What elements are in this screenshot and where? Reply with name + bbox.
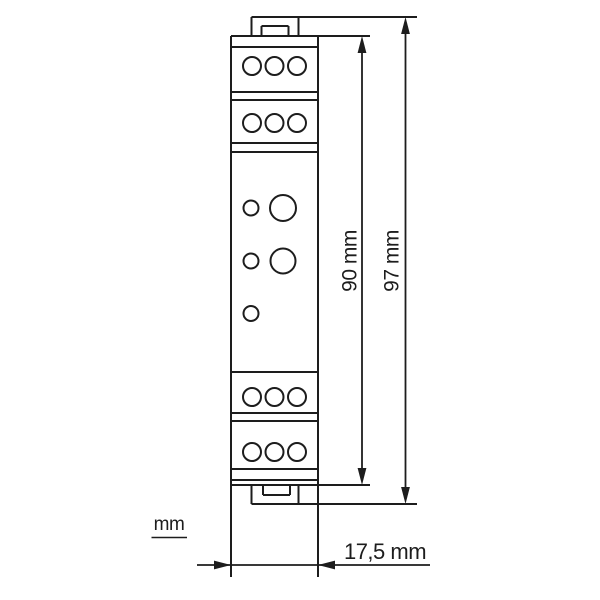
- arrowhead-up-icon: [401, 17, 410, 34]
- small-indicator-hole: [244, 254, 259, 269]
- screw-terminal-circle: [243, 114, 261, 132]
- large-adjuster-hole: [271, 249, 296, 274]
- arrowhead-down-icon: [401, 487, 410, 504]
- screw-terminal-circle: [266, 388, 284, 406]
- terminal-row-2: [243, 114, 306, 132]
- arrowhead-right-icon: [214, 561, 231, 570]
- bottom-mount-tab: [252, 485, 418, 504]
- dim-label-97mm: 97 mm: [381, 230, 404, 292]
- arrowhead-up-icon: [358, 36, 367, 53]
- screw-terminal-circle: [243, 443, 261, 461]
- screw-terminal-circle: [243, 388, 261, 406]
- small-indicator-hole: [244, 201, 259, 216]
- drawing-canvas: 90 mm 97 mm 17,5 mm mm: [0, 0, 600, 600]
- screw-terminal-circle: [266, 114, 284, 132]
- dim-label-90mm: 90 mm: [339, 230, 362, 292]
- front-panel-holes: [244, 195, 297, 321]
- terminal-row-4: [243, 443, 306, 461]
- arrowhead-down-icon: [358, 468, 367, 485]
- dim-label-17-5mm: 17,5 mm: [344, 539, 426, 564]
- units-note-label: mm: [154, 514, 185, 535]
- screw-terminal-circle: [288, 57, 306, 75]
- top-mount-tab: [252, 17, 418, 36]
- screw-terminal-circle: [243, 57, 261, 75]
- large-adjuster-hole: [270, 195, 296, 221]
- screw-terminal-circle: [266, 57, 284, 75]
- screw-terminal-circle: [288, 388, 306, 406]
- arrowhead-left-icon: [318, 561, 335, 570]
- dimension-drawing-svg: 90 mm 97 mm 17,5 mm mm: [0, 0, 600, 600]
- screw-terminal-circle: [288, 443, 306, 461]
- terminal-row-1: [243, 57, 306, 75]
- device-outline: [231, 17, 417, 577]
- screw-terminal-circle: [266, 443, 284, 461]
- screw-terminal-circle: [288, 114, 306, 132]
- small-indicator-hole: [244, 306, 259, 321]
- terminal-row-3: [243, 388, 306, 406]
